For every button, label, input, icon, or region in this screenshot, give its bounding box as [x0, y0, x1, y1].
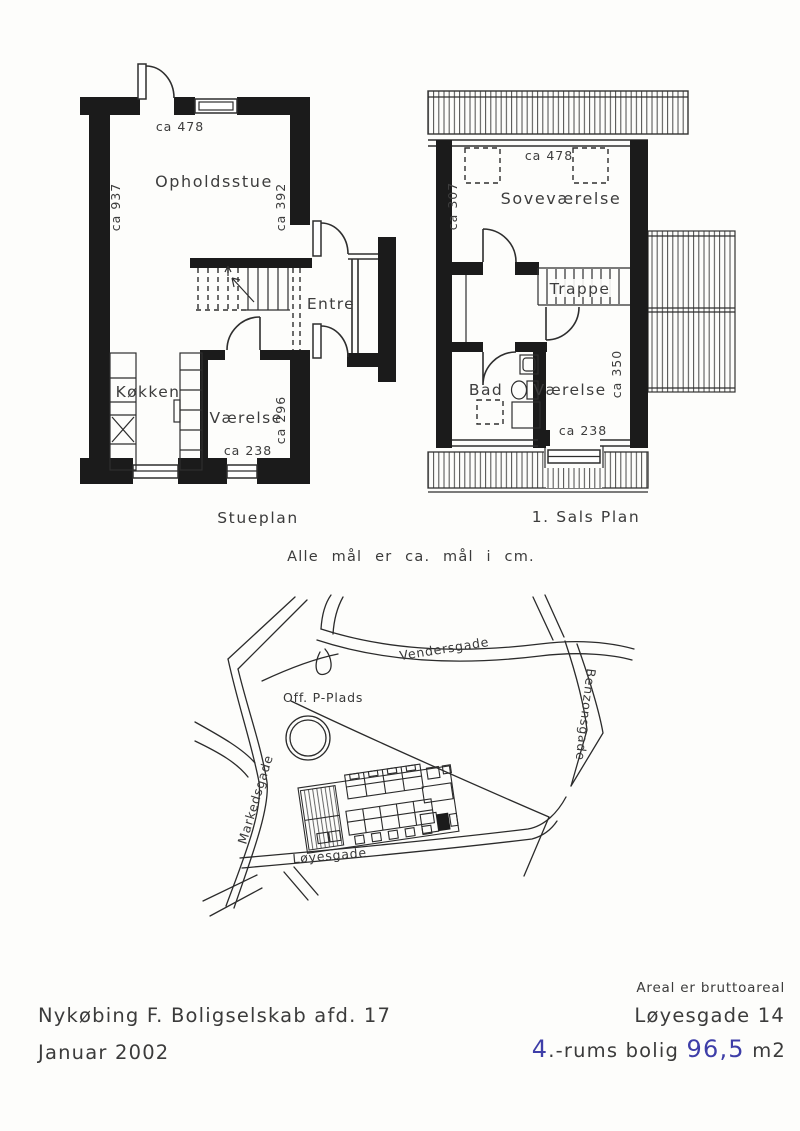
address: Løyesgade 14 [634, 1004, 785, 1027]
measurement-note: Alle mål er ca. mål i cm. [281, 549, 541, 565]
salsplan-labels: Soveværelse Trappe Bad Værelse ca 478 ca… [445, 148, 624, 438]
dim-varelse-right: ca 296 [273, 396, 288, 444]
site-map: Vendersgade Benzonsgade Markedsgade Løye… [195, 588, 645, 910]
area-unit: m2 [752, 1039, 786, 1062]
room-label-bad: Bad [469, 381, 503, 399]
room-label-entre: Entre [307, 295, 355, 313]
rooms-count-handwritten: 4 [532, 1035, 548, 1063]
parking-label: Off. P-Plads [283, 690, 363, 705]
dim-left-sal: ca 307 [445, 182, 460, 230]
dim-right: ca 392 [273, 183, 288, 231]
stueplan-drawing: Opholdsstue Entre Køkken Værelse ca 478 … [78, 55, 410, 495]
scanned-floorplan-sheet: Opholdsstue Entre Køkken Værelse ca 478 … [0, 0, 800, 1131]
dim-top: ca 478 [156, 119, 204, 134]
caption-salsplan: 1. Sals Plan [521, 508, 651, 526]
roof-hatch-top [428, 91, 688, 134]
area-value-handwritten: 96,5 [687, 1035, 745, 1063]
stueplan-labels: Opholdsstue Entre Køkken Værelse ca 478 … [108, 119, 355, 458]
document-date: Januar 2002 [38, 1041, 169, 1064]
salsplan-drawing: Soveværelse Trappe Bad Værelse ca 478 ca… [420, 85, 742, 505]
room-label-trappe: Trappe [549, 280, 611, 298]
caption-stueplan: Stueplan [195, 509, 321, 527]
subject-building-highlight [436, 813, 450, 832]
dim-varelse-bottom: ca 238 [224, 443, 272, 458]
room-label-varelse-first: Værelse [533, 381, 606, 399]
rooms-suffix: .-rums bolig [548, 1039, 679, 1062]
dim-top-sal: ca 478 [525, 148, 573, 163]
kitchen-cabinets [110, 353, 202, 470]
dim-right-sal: ca 350 [609, 350, 624, 398]
dim-varelse-bottom-sal: ca 238 [559, 423, 607, 438]
street-label-loyesgade: Løyesgade [292, 845, 368, 866]
dim-left: ca 937 [108, 183, 123, 231]
street-label-vendersgade: Vendersgade [398, 634, 490, 663]
roof-hatch-right [648, 231, 735, 392]
room-label-opholdsstue: Opholdsstue [155, 172, 273, 191]
dwelling-info-line: 4.-rums bolig 96,5 m2 [532, 1037, 786, 1062]
map-roundabout [286, 716, 330, 760]
room-label-varelse-ground: Værelse [209, 409, 282, 427]
room-label-kokken: Køkken [116, 383, 181, 401]
area-note: Areal er bruttoareal [636, 980, 785, 996]
salsplan-doors [483, 229, 579, 385]
company-name: Nykøbing F. Boligselskab afd. 17 [38, 1004, 391, 1027]
stueplan-stairs [196, 266, 300, 350]
room-label-sovevarelse: Soveværelse [501, 189, 622, 208]
roof-hatch-bottom [428, 446, 648, 492]
